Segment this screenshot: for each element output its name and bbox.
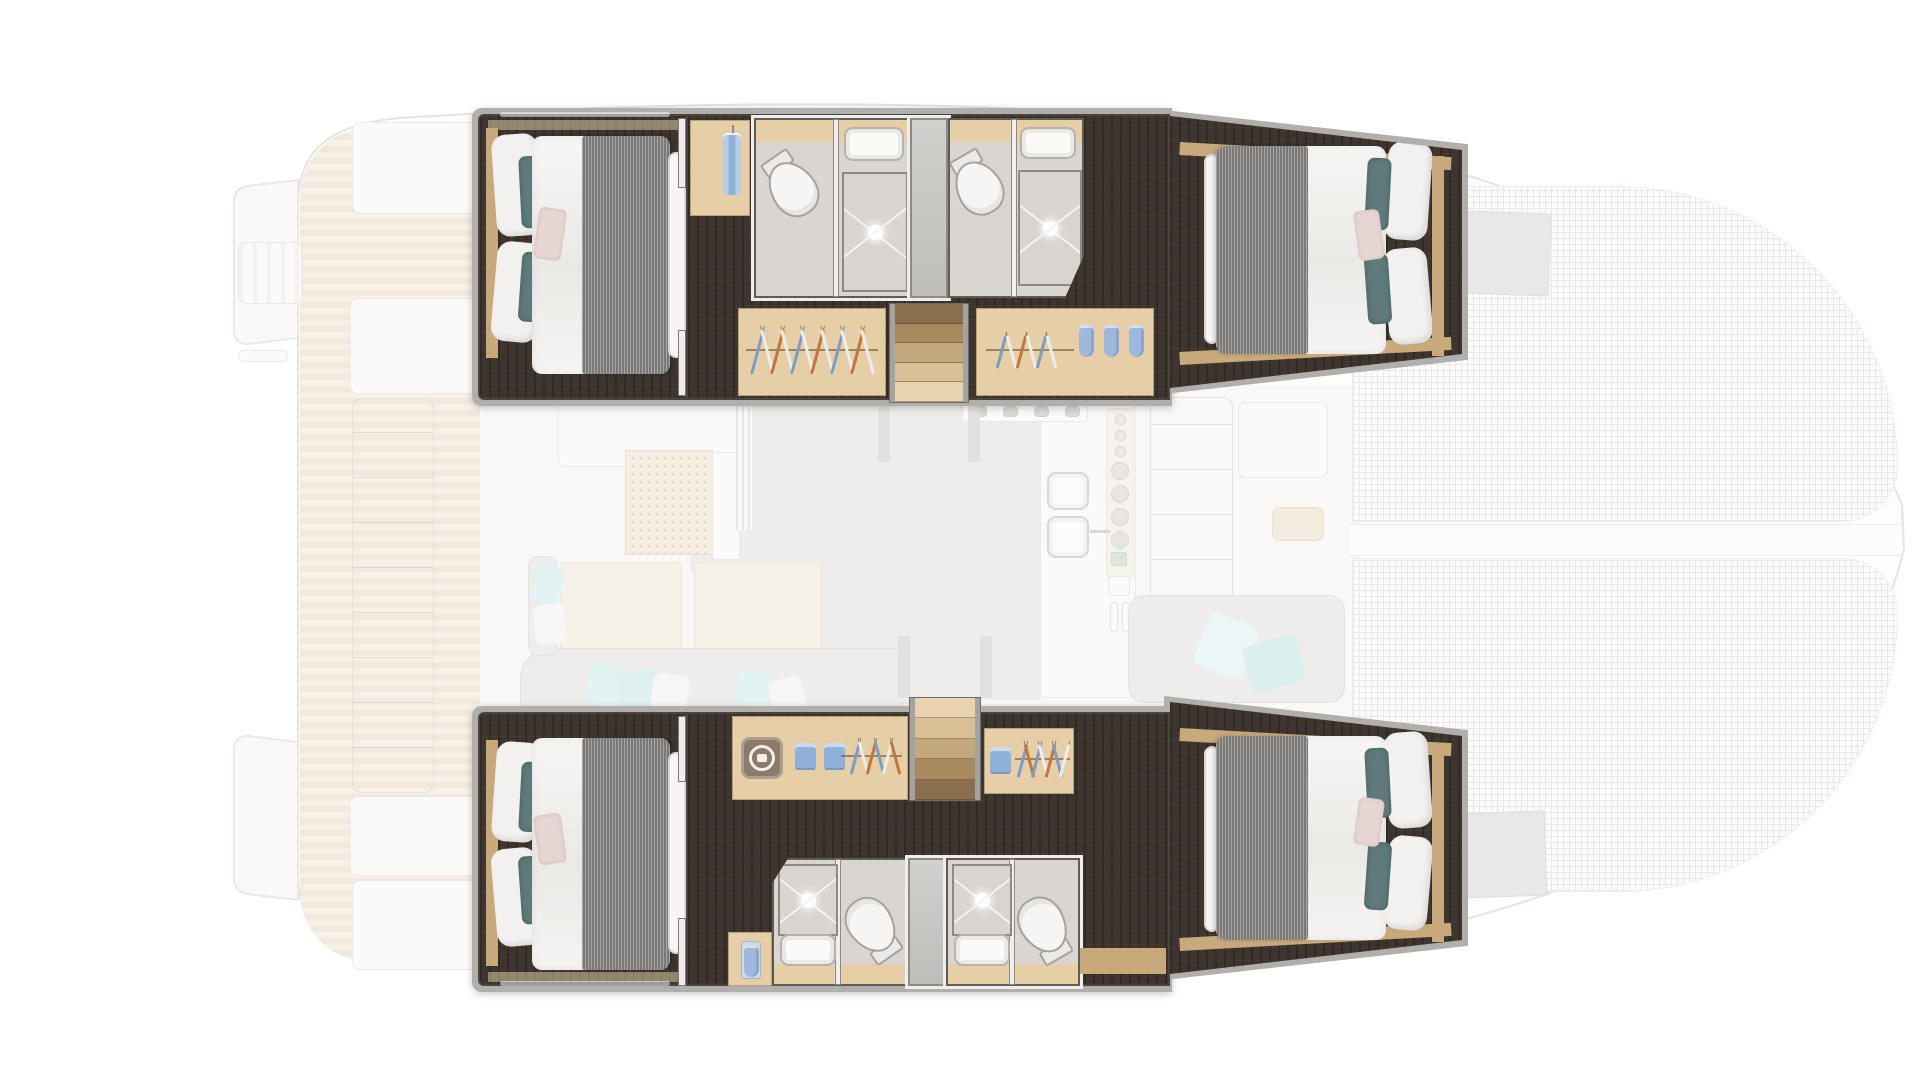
hull-bench-trim xyxy=(1080,948,1166,974)
aft-cockpit-sofa xyxy=(352,398,434,793)
plate-icon xyxy=(1115,446,1126,457)
bathroom-starboard-fwd xyxy=(946,858,1080,986)
hanger-rack xyxy=(1015,729,1071,793)
cabin-starboard-fwd xyxy=(1170,702,1462,974)
toilet-icon xyxy=(836,888,907,962)
bathroom-starboard-aft xyxy=(772,858,908,986)
galley-sink-1 xyxy=(1047,472,1089,510)
bathroom-port-aft xyxy=(754,118,910,298)
throw-pillow xyxy=(531,602,568,646)
vanity-counter xyxy=(774,964,906,984)
deck-hatch-top xyxy=(1464,211,1552,297)
hanger-icon xyxy=(1015,335,1027,369)
bed-blanket xyxy=(1216,736,1308,940)
hanging-shirt-icon xyxy=(723,133,741,195)
shower-icon xyxy=(778,864,838,936)
stair-tread xyxy=(895,324,963,344)
wardrobe-starboard-fwd xyxy=(984,728,1074,794)
plate-icon xyxy=(1111,531,1129,549)
stair-tread xyxy=(895,343,963,363)
burner-icon xyxy=(1065,406,1080,417)
stair-tread xyxy=(895,382,963,402)
bathroom-divider-wall xyxy=(1012,120,1016,296)
hanger-icon xyxy=(1025,335,1037,369)
bed-blanket xyxy=(1216,146,1308,354)
cabin-starboard-aft xyxy=(478,712,688,986)
folded-shirt-icon xyxy=(795,743,816,770)
toilet-icon xyxy=(945,152,1013,223)
hanger-rack xyxy=(983,309,1069,395)
plate-icon xyxy=(1115,414,1126,425)
cabin-port-fwd-wrap xyxy=(1164,110,1468,394)
sink-icon xyxy=(844,127,904,161)
dinette-table-right xyxy=(694,562,822,657)
dish-rack-slot xyxy=(1110,602,1118,632)
towel-icon xyxy=(744,945,759,977)
closet xyxy=(728,932,772,986)
stair-tread xyxy=(915,759,975,779)
forward-table-hatch xyxy=(1238,402,1328,478)
plate-icon xyxy=(1111,508,1129,526)
stair-wall xyxy=(878,400,890,462)
stair-wall xyxy=(980,636,992,698)
burner-icon xyxy=(1034,406,1049,417)
bed-blanket xyxy=(582,136,670,374)
cabin-port-aft xyxy=(478,114,688,400)
plate-icon xyxy=(1115,430,1126,441)
cabin-port-fwd xyxy=(1170,116,1462,388)
plate-icon xyxy=(1111,485,1129,503)
bed-blanket xyxy=(582,738,670,970)
folded-shirts xyxy=(795,743,845,770)
stair-wall xyxy=(968,400,980,462)
pillow-white xyxy=(1383,141,1434,242)
dinette-table-left xyxy=(560,562,682,657)
towel-icon xyxy=(1129,325,1144,357)
stair-wall xyxy=(898,636,910,698)
bed-headboard xyxy=(1432,156,1444,356)
galley-hob-switch xyxy=(1108,576,1130,596)
towel-icon xyxy=(1079,325,1094,357)
hanger-icon xyxy=(995,335,1007,369)
plate-icon xyxy=(1111,462,1129,480)
deck-hatch-bottom xyxy=(1457,810,1548,898)
trampoline-center-beam xyxy=(1350,524,1902,556)
cabin-starboard-fwd-wrap xyxy=(1164,696,1468,980)
cabin-door-wall xyxy=(678,716,686,782)
stair-tread xyxy=(895,304,963,324)
burner-icon xyxy=(1003,406,1018,417)
plate-stack xyxy=(1110,462,1130,549)
sink-icon xyxy=(780,934,836,966)
folded-shirt-icon xyxy=(990,747,1011,774)
wardrobe-port-aft xyxy=(738,308,886,396)
hull-window xyxy=(500,112,670,117)
washing-machine-icon xyxy=(741,737,783,779)
bathroom-port-fwd xyxy=(948,118,1084,298)
dinette-bench xyxy=(520,648,910,714)
hanger-rack xyxy=(739,309,885,395)
stair-tread xyxy=(915,718,975,738)
toilet-icon xyxy=(1009,888,1078,961)
bathroom-divider-wall xyxy=(834,120,838,296)
hanger-icon xyxy=(860,329,875,374)
toilet-icon xyxy=(758,152,829,226)
herb-tray xyxy=(1111,552,1127,566)
towel-icon xyxy=(1104,325,1119,357)
hanger-icon xyxy=(1035,335,1047,369)
galley-sink-2 xyxy=(1047,516,1089,558)
stair-tread xyxy=(915,780,975,800)
bed-headboard xyxy=(1432,746,1444,942)
stairs-port xyxy=(890,304,968,402)
cabin-door-wall xyxy=(678,918,686,986)
cabin-door-wall xyxy=(678,330,686,396)
stair-tread xyxy=(915,698,975,718)
shower-icon xyxy=(1018,170,1082,286)
hanger-icon xyxy=(1058,744,1070,778)
folded-shirts xyxy=(990,747,1011,774)
sink-icon xyxy=(1020,127,1076,159)
closet xyxy=(690,120,750,216)
catamaran-floorplan xyxy=(0,0,1920,1080)
hanger-rack xyxy=(845,717,905,799)
shower-icon xyxy=(952,864,1012,936)
helm-remote-panel xyxy=(1272,507,1324,541)
wardrobe-port-fwd xyxy=(976,308,1154,396)
cabin-door-wall xyxy=(678,118,686,188)
pillow-teal xyxy=(1364,253,1393,325)
ceiling-trim xyxy=(488,120,678,130)
companionway-landing xyxy=(908,858,946,986)
hanger-icon xyxy=(889,741,901,775)
stair-tread xyxy=(895,363,963,383)
towel-rack xyxy=(1079,325,1144,357)
sliding-door-track xyxy=(736,385,752,530)
hanger-icon xyxy=(1005,335,1017,369)
stairs-starboard xyxy=(910,698,980,800)
wardrobe-starboard-aft xyxy=(732,716,908,800)
small-plates xyxy=(1110,414,1130,457)
stern-rail xyxy=(238,350,288,362)
hull-window xyxy=(500,981,670,986)
stern-ladder xyxy=(238,242,302,304)
companionway-landing xyxy=(910,118,948,298)
louver-cabinet xyxy=(625,450,713,555)
galley-faucet xyxy=(1090,530,1110,533)
stair-tread xyxy=(915,739,975,759)
pillow-teal xyxy=(1364,841,1393,911)
shower-icon xyxy=(842,172,908,292)
hanger-icon xyxy=(1045,335,1057,369)
sink-icon xyxy=(954,934,1010,966)
